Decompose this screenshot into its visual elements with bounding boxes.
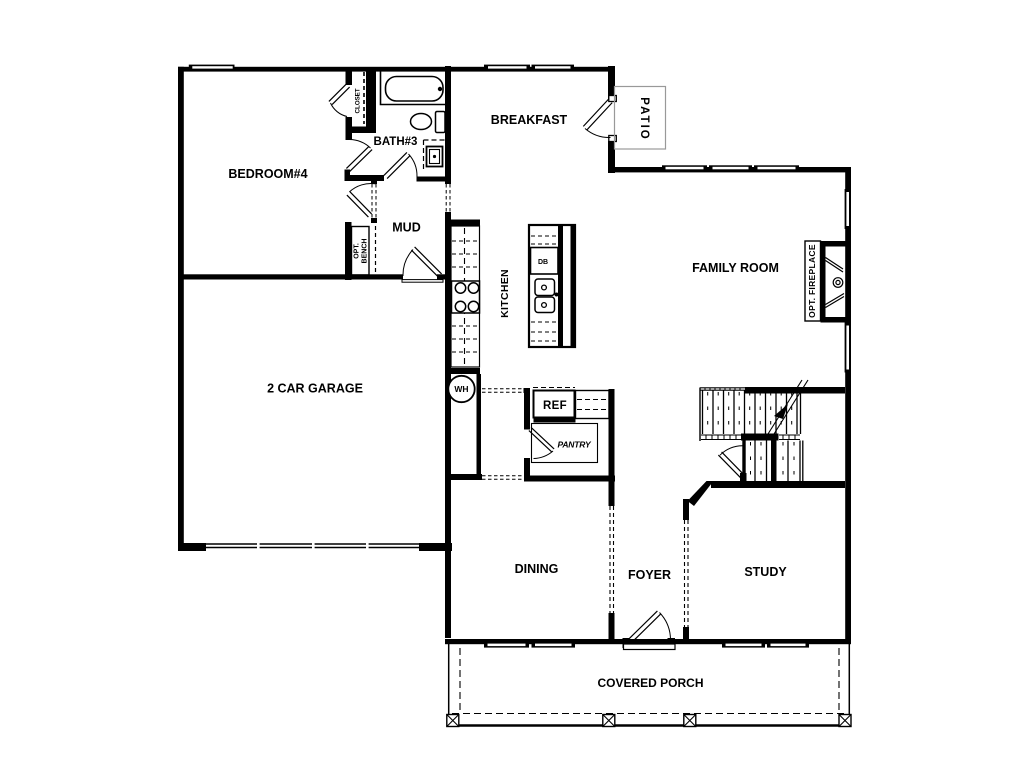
svg-text:OPT. FIREPLACE: OPT. FIREPLACE — [807, 244, 817, 318]
svg-text:PATIO: PATIO — [638, 97, 650, 140]
svg-text:CLOSET: CLOSET — [355, 88, 362, 113]
svg-text:REF: REF — [543, 400, 567, 412]
svg-text:2 CAR GARAGE: 2 CAR GARAGE — [267, 382, 363, 396]
svg-text:WH: WH — [454, 384, 468, 394]
svg-text:DB: DB — [538, 259, 548, 266]
svg-text:STUDY: STUDY — [744, 565, 787, 579]
svg-text:BENCH: BENCH — [362, 239, 369, 264]
svg-text:FAMILY ROOM: FAMILY ROOM — [692, 261, 779, 275]
svg-text:COVERED PORCH: COVERED PORCH — [597, 676, 703, 690]
svg-text:PANTRY: PANTRY — [558, 440, 592, 450]
svg-text:BEDROOM#4: BEDROOM#4 — [228, 167, 307, 181]
svg-text:OPT.: OPT. — [354, 243, 361, 259]
svg-text:DINING: DINING — [515, 562, 559, 576]
svg-text:BATH#3: BATH#3 — [374, 136, 418, 148]
svg-text:BREAKFAST: BREAKFAST — [491, 113, 568, 127]
svg-text:FOYER: FOYER — [628, 568, 671, 582]
svg-text:KITCHEN: KITCHEN — [499, 269, 511, 318]
svg-text:MUD: MUD — [392, 221, 420, 235]
